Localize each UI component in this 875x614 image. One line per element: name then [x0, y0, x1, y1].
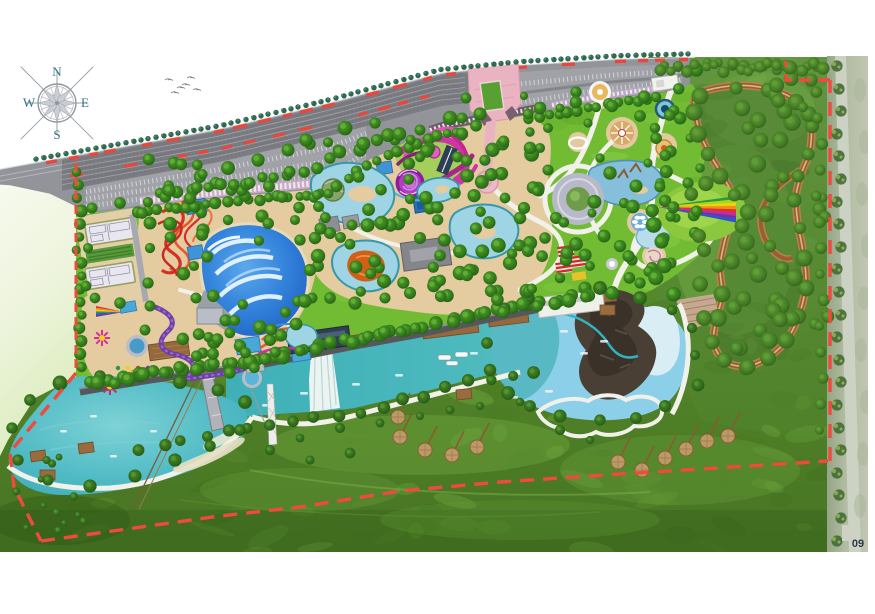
svg-text:09: 09 [852, 538, 864, 550]
svg-text:S: S [53, 127, 60, 142]
svg-text:W: W [23, 95, 36, 110]
svg-text:N: N [52, 64, 62, 79]
svg-text:E: E [81, 95, 89, 110]
